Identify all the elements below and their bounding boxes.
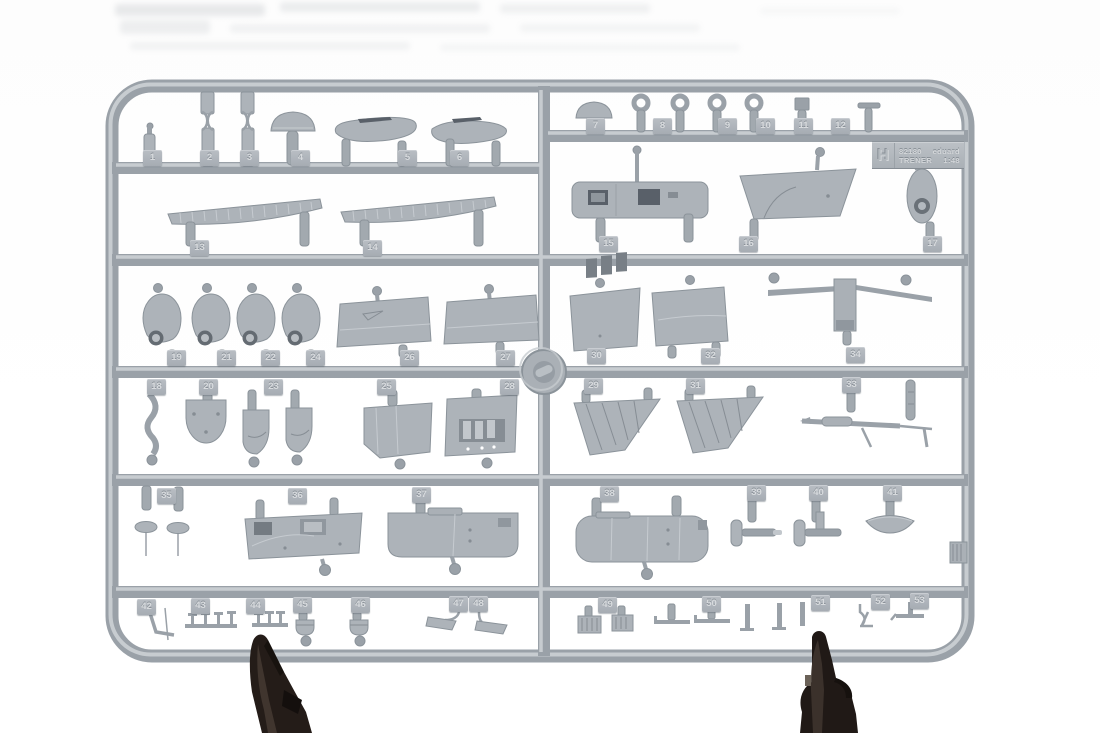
part-number-tag-52: 52 (871, 594, 890, 610)
part-number-tag-17: 17 (923, 236, 942, 252)
part-number-tag-8: 8 (653, 118, 672, 134)
part-32-panel (652, 276, 728, 359)
part-number-tag-40: 40 (809, 485, 828, 501)
part-number-tag-21: 21 (217, 350, 236, 366)
part-number-tag-35: 35 (157, 488, 176, 504)
part-34-spar-crossbar (768, 273, 932, 345)
photo-scene: H 82180 eduard TRENER 1:48 1234567891011… (0, 0, 1100, 733)
part-20-fan-plate (186, 393, 226, 443)
part-48-paddle (475, 612, 507, 634)
part-number-tag-10: 10 (756, 118, 775, 134)
part-30-louvre-panel (570, 252, 640, 363)
sprue-label-plate: H 82180 eduard TRENER 1:48 (872, 141, 964, 169)
part-number-tag-7: 7 (586, 118, 605, 134)
part-45-hub (296, 611, 314, 646)
part-23-scoops (243, 390, 312, 467)
part-on-right-rail (950, 542, 967, 563)
part-14-flap (341, 197, 496, 246)
sprue-hub (520, 348, 566, 394)
part-number-tag-50: 50 (702, 596, 721, 612)
part-number-tag-49: 49 (598, 597, 617, 613)
part-number-tag-22: 22 (261, 350, 280, 366)
part-number-tag-27: 27 (496, 350, 515, 366)
part-number-tag-13: 13 (190, 240, 209, 256)
part-number-tag-53: 53 (910, 593, 929, 609)
part-number-tag-44: 44 (246, 598, 265, 614)
kit-scale: 1:48 (943, 156, 960, 165)
part-number-tag-2: 2 (200, 150, 219, 166)
part-number-tag-12: 12 (831, 118, 850, 134)
part-number-tag-48: 48 (469, 596, 488, 612)
part-number-tag-26: 26 (400, 350, 419, 366)
part-37-panel (388, 499, 518, 575)
part-number-tag-41: 41 (883, 485, 902, 501)
part-number-tag-37: 37 (412, 487, 431, 503)
part-number-tag-4: 4 (291, 150, 310, 166)
part-25-cowl-panel (364, 390, 432, 469)
part-33-strut (800, 380, 932, 447)
part-number-tag-51: 51 (811, 595, 830, 611)
part-number-tag-11: 11 (794, 118, 813, 134)
part-number-tag-34: 34 (846, 347, 865, 363)
sprue-letter: H (872, 143, 895, 168)
part-39-bracket (731, 498, 782, 546)
part-number-tag-39: 39 (747, 485, 766, 501)
part-number-tag-33: 33 (842, 377, 861, 393)
kit-name: TRENER (899, 156, 932, 165)
part-26-box (337, 287, 431, 358)
part-36-cockpit-floor (245, 498, 362, 576)
part-29-gusset (574, 388, 660, 455)
sprue (0, 0, 1100, 733)
part-number-tag-16: 16 (739, 236, 758, 252)
brand-name: eduard (933, 147, 960, 156)
part-number-tag-31: 31 (686, 378, 705, 394)
part-number-tag-9: 9 (718, 118, 737, 134)
part-number-tag-23: 23 (264, 379, 283, 395)
part-number-tag-3: 3 (240, 150, 259, 166)
part-40-bracket (794, 498, 841, 546)
part-number-tag-1: 1 (143, 150, 162, 166)
part-47-paddle (426, 612, 459, 630)
part-27-box (444, 285, 539, 355)
part-number-tag-6: 6 (450, 150, 469, 166)
part-number-tag-38: 38 (600, 486, 619, 502)
part-number-tag-18: 18 (147, 379, 166, 395)
part-number-tag-25: 25 (377, 379, 396, 395)
part-number-tag-5: 5 (398, 150, 417, 166)
part-46-hub (350, 611, 368, 646)
part-38-panel (576, 496, 708, 580)
part-number-tag-29: 29 (584, 378, 603, 394)
part-13-flap (168, 199, 322, 246)
part-41-bell-disc (866, 498, 914, 533)
part-18-wavy-strip (147, 394, 157, 465)
left-holding-clip (250, 634, 312, 733)
part-6-tip-tank (432, 117, 507, 166)
part-31-gusset (677, 386, 763, 453)
part-28-louvre-panel (445, 389, 517, 468)
part-number-tag-24: 24 (306, 350, 325, 366)
right-holding-clip (800, 631, 858, 733)
part-number-tag-20: 20 (199, 379, 218, 395)
part-number-tag-43: 43 (191, 598, 210, 614)
part-number-tag-30: 30 (587, 348, 606, 364)
sprue-label-text: 82180 eduard TRENER 1:48 (895, 146, 964, 165)
part-number-tag-14: 14 (363, 240, 382, 256)
part-number-tag-28: 28 (500, 379, 519, 395)
part-number-tag-47: 47 (449, 596, 468, 612)
part-number-tag-36: 36 (288, 488, 307, 504)
part-16-cockpit-wall (740, 148, 856, 242)
kit-code: 82180 (899, 147, 922, 156)
part-number-tag-42: 42 (137, 599, 156, 615)
part-15-fuselage-deck (572, 146, 708, 242)
part-number-tag-46: 46 (351, 597, 370, 613)
part-number-tag-45: 45 (293, 597, 312, 613)
part-number-tag-19: 19 (167, 350, 186, 366)
part-51-pins (740, 602, 805, 631)
part-12-t-handle (858, 103, 880, 132)
part-number-tag-15: 15 (599, 236, 618, 252)
part-number-tag-32: 32 (701, 348, 720, 364)
